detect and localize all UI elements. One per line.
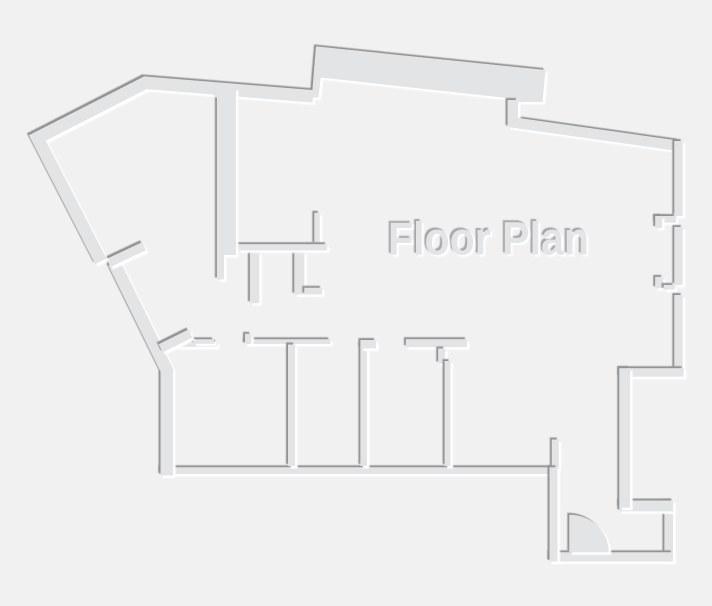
svg-text:Floor Plan: Floor Plan [388,213,589,265]
